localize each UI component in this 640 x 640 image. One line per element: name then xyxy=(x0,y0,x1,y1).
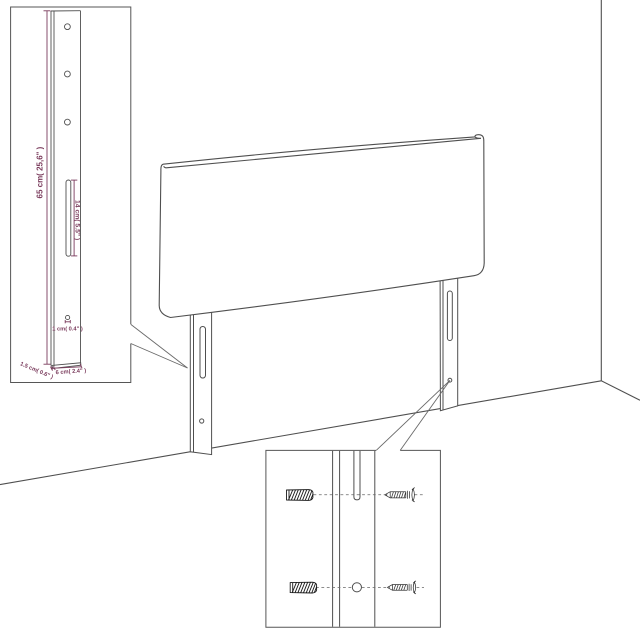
svg-text:1 cm( 0.4" ): 1 cm( 0.4" ) xyxy=(52,327,83,333)
svg-text:65 cm( 25,6" ): 65 cm( 25,6" ) xyxy=(35,146,44,198)
svg-text:14 cm( 5.5" ): 14 cm( 5.5" ) xyxy=(74,200,81,240)
